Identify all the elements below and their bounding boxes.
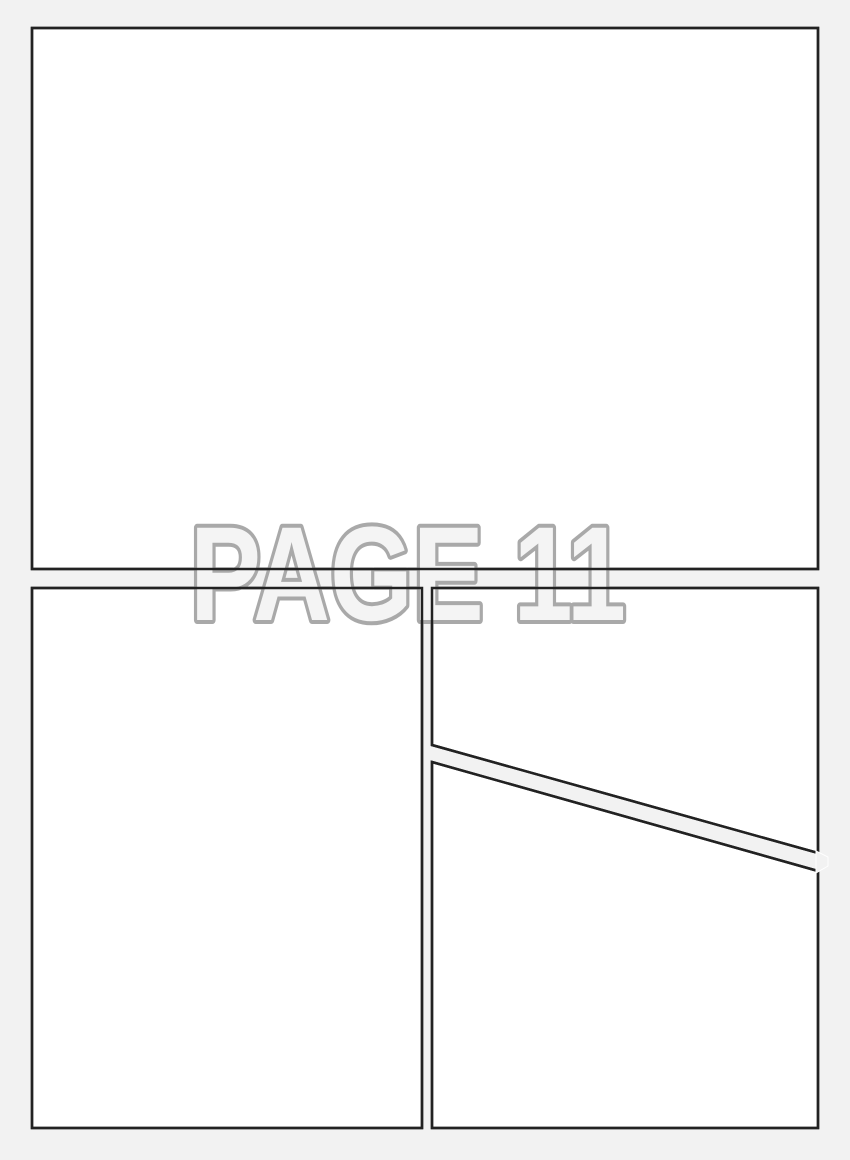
comic-page-template: PAGE 11 xyxy=(0,0,850,1160)
panel-bottom-left xyxy=(32,588,422,1128)
diagonal-gutter-notch xyxy=(816,851,828,873)
panel-top xyxy=(32,28,818,569)
comic-page-canvas: PAGE 11 xyxy=(0,0,850,1160)
page-number-label: PAGE 11 xyxy=(190,500,626,649)
